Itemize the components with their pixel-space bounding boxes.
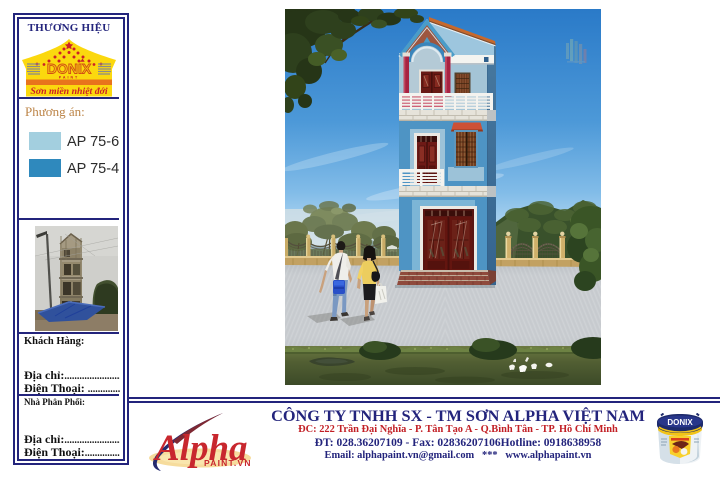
svg-text:DONIX: DONIX — [667, 418, 693, 427]
svg-text:DONIX: DONIX — [47, 61, 92, 77]
svg-text:PAINT: PAINT — [59, 76, 80, 80]
svg-text:PAINT.VN: PAINT.VN — [204, 458, 252, 468]
svg-text:Sơn miền nhiệt đới: Sơn miền nhiệt đới — [30, 86, 107, 97]
